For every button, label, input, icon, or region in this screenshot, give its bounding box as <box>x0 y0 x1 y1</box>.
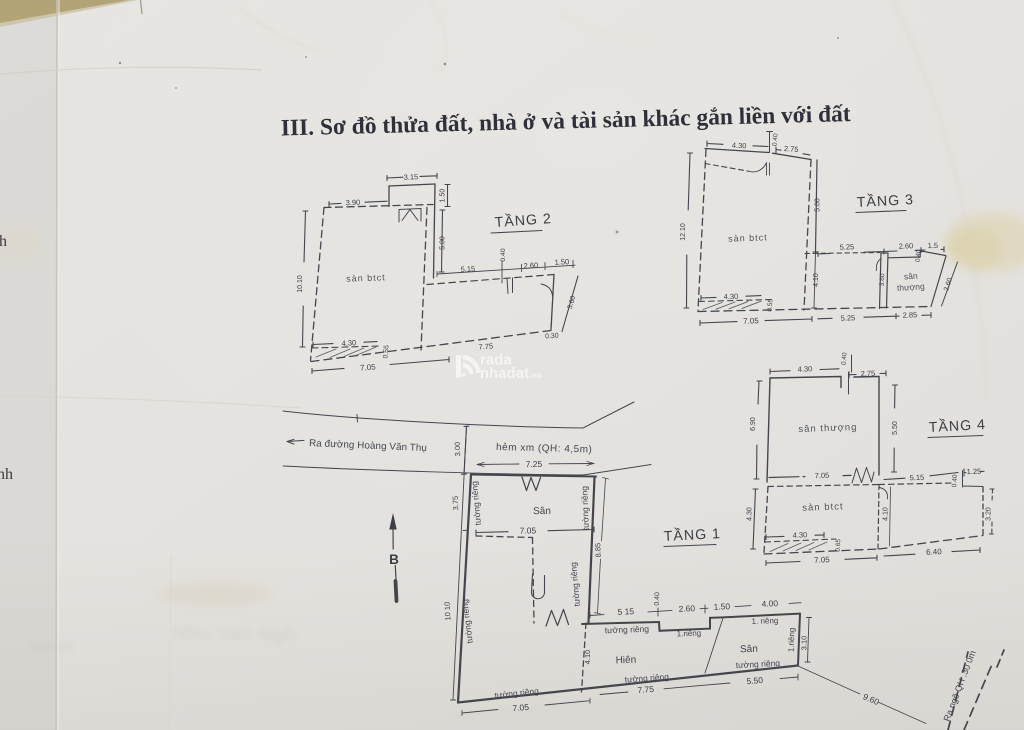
svg-text:10.10: 10.10 <box>297 275 304 293</box>
svg-text:sàn btct: sàn btct <box>802 501 844 513</box>
svg-text:1. riêng: 1. riêng <box>751 616 778 626</box>
svg-text:5.00: 5.00 <box>815 198 822 212</box>
svg-text:4.00: 4.00 <box>761 598 778 609</box>
svg-text:6.90: 6.90 <box>750 417 757 431</box>
svg-text:4.30: 4.30 <box>732 141 747 151</box>
svg-text:TẦNG 1: TẦNG 1 <box>663 525 721 545</box>
svg-text:sàn btct: sàn btct <box>346 272 386 283</box>
svg-text:4.10: 4.10 <box>883 507 890 521</box>
svg-text:5.15: 5.15 <box>909 473 924 483</box>
svg-text:h: h <box>0 233 7 250</box>
svg-text:7.05: 7.05 <box>360 362 377 372</box>
svg-text:0.30: 0.30 <box>545 333 559 341</box>
svg-text:7.75: 7.75 <box>637 684 655 695</box>
svg-text:3.75: 3.75 <box>451 496 461 511</box>
svg-text:Hiên: Hiên <box>615 655 636 667</box>
svg-text:0.40: 0.40 <box>500 248 507 261</box>
svg-text:tường riêng: tường riêng <box>605 624 650 636</box>
svg-text:thượng: thượng <box>897 281 926 293</box>
svg-text:0.40: 0.40 <box>840 352 848 366</box>
svg-text:0.40: 0.40 <box>654 592 661 606</box>
svg-text:5.00: 5.00 <box>440 236 447 250</box>
svg-text:3.15: 3.15 <box>403 172 418 182</box>
svg-text:3.90: 3.90 <box>345 198 360 208</box>
svg-text:2.60: 2.60 <box>523 261 538 271</box>
svg-text:4.30: 4.30 <box>792 530 807 540</box>
svg-text:4.30: 4.30 <box>797 364 812 374</box>
svg-text:2.60: 2.60 <box>898 241 913 251</box>
svg-text:3.20: 3.20 <box>986 507 993 521</box>
svg-text:5.50: 5.50 <box>746 675 764 686</box>
svg-text:tường riêng: tường riêng <box>579 486 591 531</box>
svg-text:0.55: 0.55 <box>382 345 390 359</box>
svg-text:B: B <box>389 552 399 567</box>
svg-text:2.75: 2.75 <box>784 144 799 154</box>
svg-text:4.30: 4.30 <box>723 292 738 302</box>
svg-text:1.50: 1.50 <box>554 257 569 267</box>
svg-text:5 15: 5 15 <box>617 606 634 617</box>
svg-text:sân thượng: sân thượng <box>798 422 857 435</box>
svg-text:4.10: 4.10 <box>813 273 820 287</box>
svg-text:7.05: 7.05 <box>814 555 831 565</box>
svg-text:Nhu Van Ngh: Nhu Van Ngh <box>172 623 296 645</box>
svg-text:4.30: 4.30 <box>747 507 754 521</box>
svg-text:1.50: 1.50 <box>713 601 730 612</box>
svg-text:7.05: 7.05 <box>814 471 829 481</box>
svg-text:0.65: 0.65 <box>835 539 843 552</box>
svg-text:5.15: 5.15 <box>460 264 475 274</box>
svg-text:7.05: 7.05 <box>512 702 530 713</box>
svg-text:Sân: Sân <box>740 644 758 656</box>
svg-text:7.75: 7.75 <box>478 342 493 352</box>
svg-text:4.10: 4.10 <box>583 650 592 665</box>
svg-text:1.5: 1.5 <box>928 241 939 250</box>
svg-text:1.riêng: 1.riêng <box>677 629 702 639</box>
svg-text:3.10: 3.10 <box>800 636 809 651</box>
svg-text:5.25: 5.25 <box>840 313 855 323</box>
svg-text:Sân: Sân <box>533 506 551 517</box>
svg-text:6.40: 6.40 <box>926 547 943 557</box>
svg-text:1.25: 1.25 <box>966 467 981 477</box>
svg-text:2.60: 2.60 <box>678 603 695 614</box>
svg-text:nh: nh <box>0 466 13 483</box>
svg-text:0.40: 0.40 <box>771 133 779 147</box>
svg-text:7.05: 7.05 <box>743 316 759 326</box>
svg-text:3.00: 3.00 <box>453 442 463 457</box>
svg-text:sân: sân <box>904 271 919 282</box>
svg-text:12.10: 12.10 <box>680 223 687 241</box>
svg-text:2.85: 2.85 <box>902 310 917 320</box>
svg-text:8.85: 8.85 <box>593 543 603 558</box>
svg-text:sàn btct: sàn btct <box>728 232 768 243</box>
svg-text:3.60: 3.60 <box>879 273 887 286</box>
svg-text:10 10: 10 10 <box>443 602 453 621</box>
svg-text:inh th: inh th <box>30 639 74 656</box>
svg-text:1.riêng: 1.riêng <box>787 628 797 653</box>
svg-text:TẦNG 3: TẦNG 3 <box>856 191 914 211</box>
svg-text:TẦNG 4: TẦNG 4 <box>928 416 986 436</box>
svg-text:5.25: 5.25 <box>839 242 854 252</box>
svg-text:7.05: 7.05 <box>520 525 537 535</box>
svg-text:7.25: 7.25 <box>526 459 543 469</box>
svg-text:1.50: 1.50 <box>440 189 447 203</box>
svg-text:0.40: 0.40 <box>951 474 959 487</box>
svg-text:5.50: 5.50 <box>892 421 899 435</box>
